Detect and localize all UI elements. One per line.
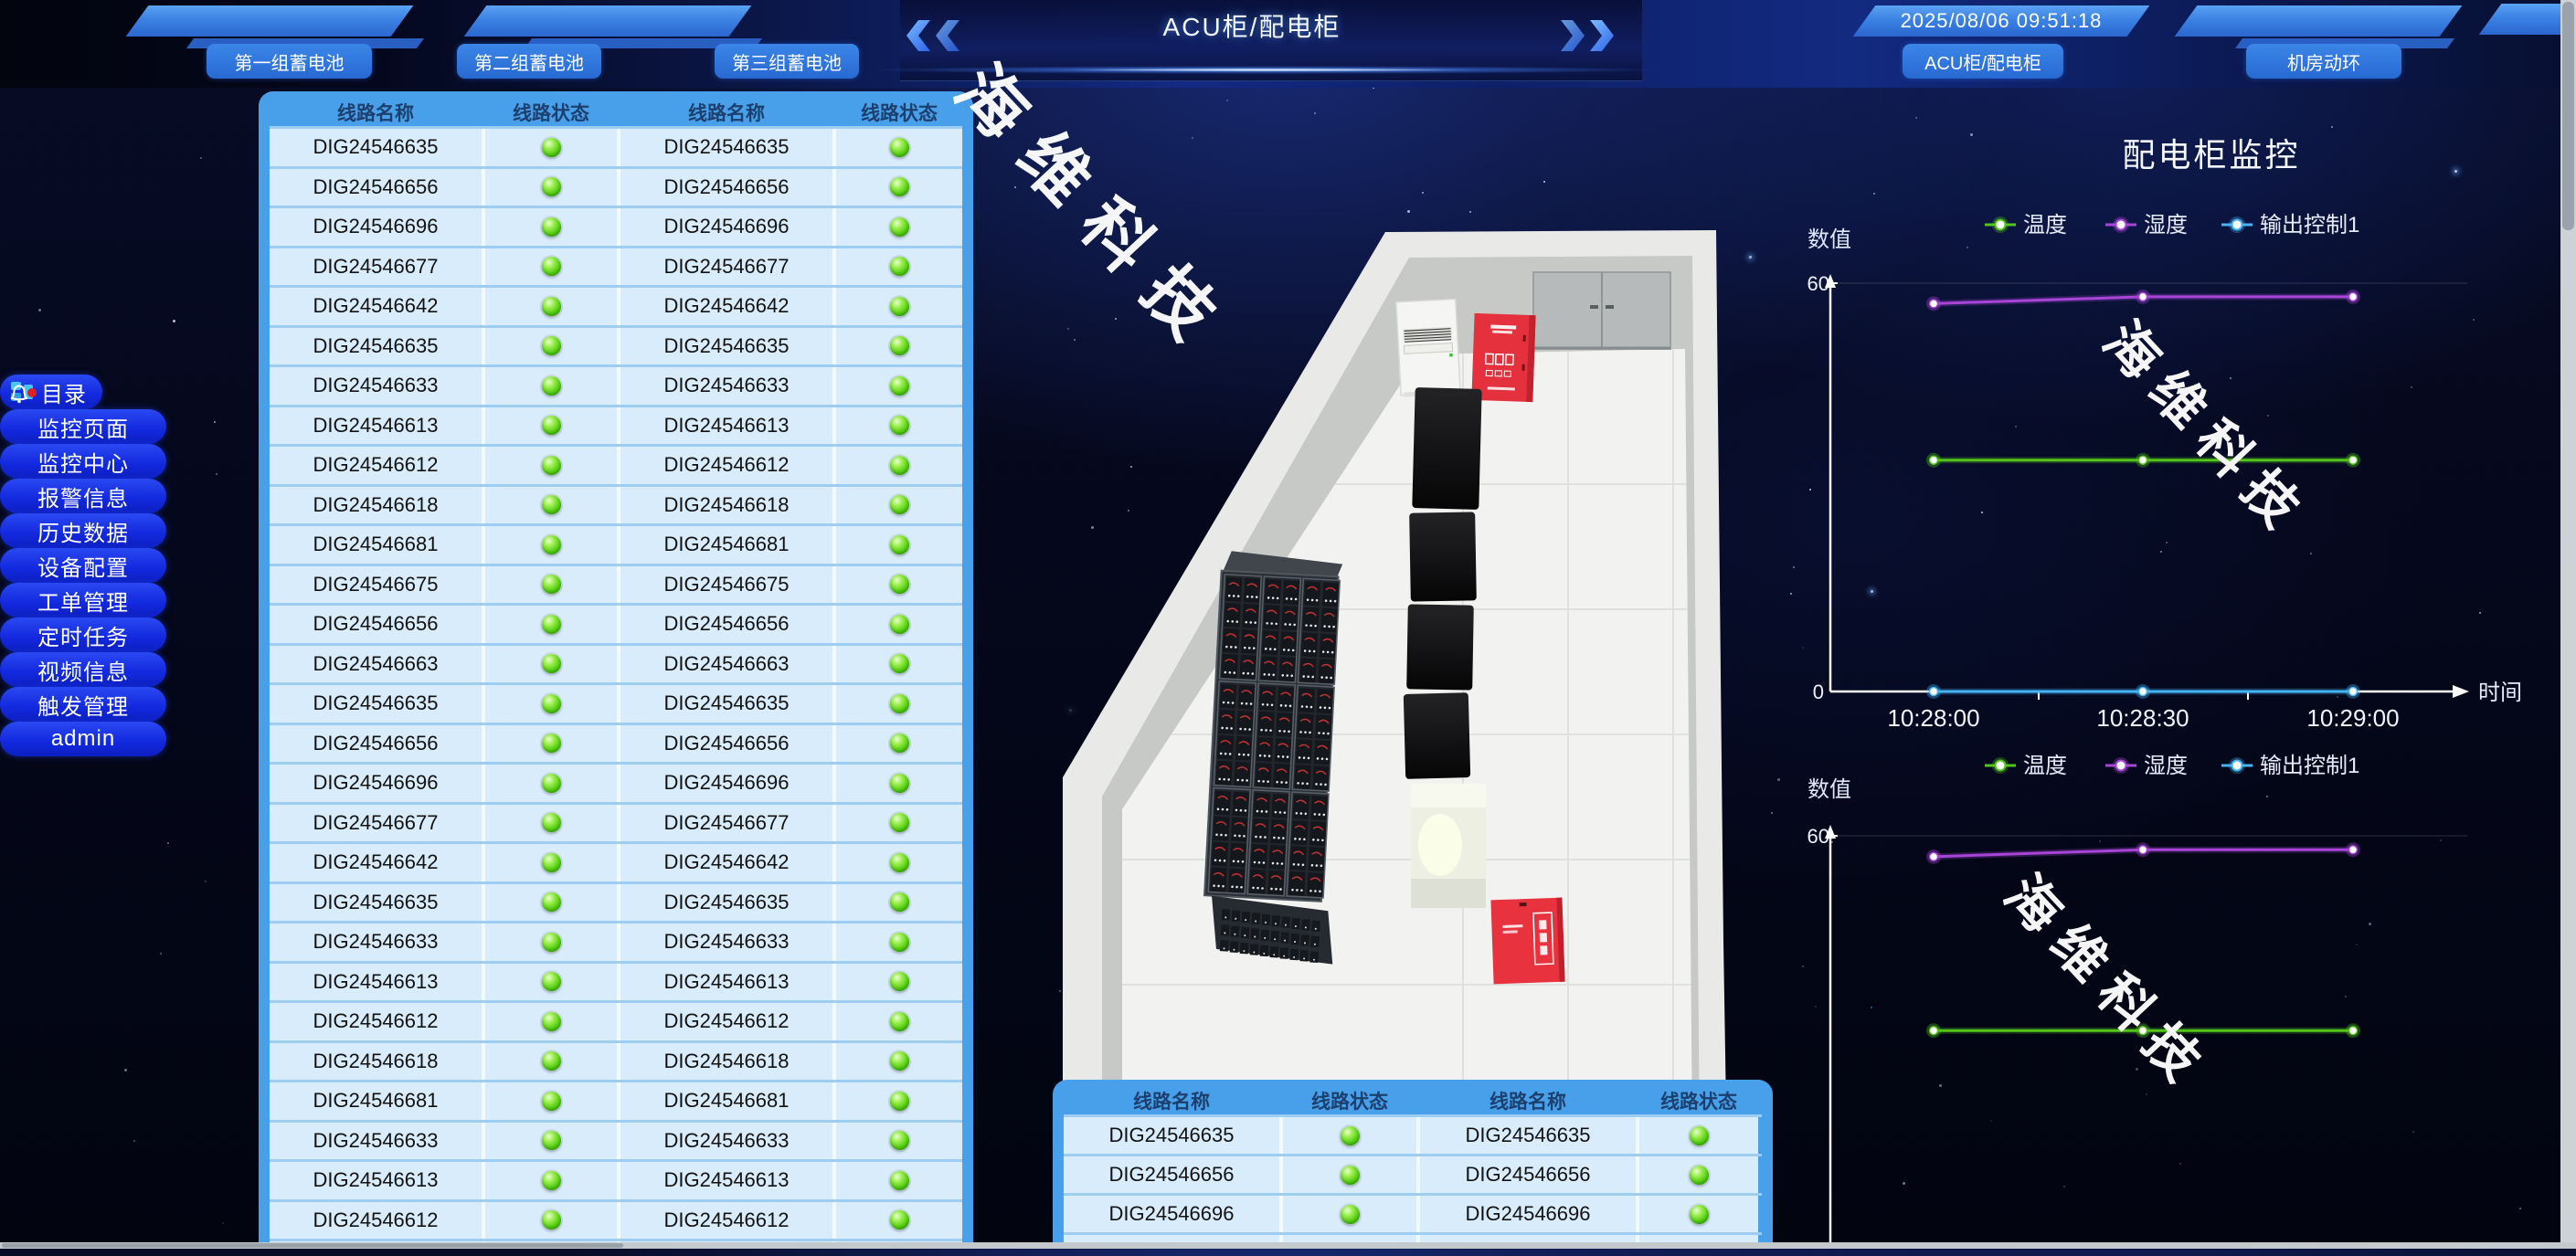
svg-text:10:28:30: 10:28:30 (2096, 704, 2189, 732)
table-row: DIG24546677DIG24546677 (270, 802, 962, 842)
column-header: 线路状态 (1639, 1087, 1758, 1114)
status-led-icon (1341, 1126, 1360, 1145)
circuit-name-cell: DIG24546681 (270, 1082, 485, 1120)
vertical-scrollbar-thumb[interactable] (2562, 2, 2574, 230)
sidebar-item-8[interactable]: 定时任务 (0, 617, 166, 652)
table-row: DIG24546675DIG24546675 (270, 564, 962, 604)
circuit-status-cell (836, 526, 962, 564)
circuit-name-cell: DIG24546612 (270, 1003, 485, 1040)
table-row: DIG24546613DIG24546613 (270, 961, 962, 1001)
status-led-icon (890, 575, 909, 594)
status-led-icon (542, 774, 561, 793)
sidebar-item-11[interactable]: admin (0, 722, 166, 756)
circuit-name-cell: DIG24546696 (270, 208, 485, 246)
svg-text:10:29:00: 10:29:00 (2306, 704, 2399, 732)
svg-text:温度: 温度 (2023, 754, 2067, 778)
column-header: 线路状态 (1283, 1087, 1420, 1114)
circuit-name-cell: DIG24546612 (270, 1202, 485, 1240)
star-dot (1192, 137, 1193, 139)
circuit-status-cell (485, 805, 620, 842)
star-dot (200, 157, 202, 159)
table-row: DIG24546635DIG24546635 (270, 126, 962, 166)
circuit-name-cell: DIG24546656 (270, 725, 485, 763)
column-header: 线路名称 (1420, 1087, 1639, 1114)
sidebar-item-7[interactable]: 工单管理 (0, 583, 166, 617)
column-header: 线路名称 (270, 99, 485, 126)
circuit-name-cell: DIG24546656 (620, 606, 836, 643)
sidebar: 目录监控页面监控中心报警信息历史数据设备配置工单管理定时任务视频信息触发管理ad… (0, 375, 183, 822)
circuit-status-cell (485, 208, 620, 246)
circuit-name-cell: DIG24546696 (620, 208, 836, 246)
circuit-name-cell: DIG24546618 (270, 487, 485, 524)
circuit-name-cell: DIG24546618 (620, 487, 836, 524)
sidebar-item-10[interactable]: 触发管理 (0, 687, 166, 722)
svg-text:数值: 数值 (1807, 777, 1851, 802)
circuit-name-cell: DIG24546663 (270, 646, 485, 683)
sidebar-item-label: 历史数据 (37, 515, 129, 547)
status-led-icon (542, 1012, 561, 1031)
star-dot (167, 842, 169, 844)
svg-text:0: 0 (1813, 681, 1824, 703)
star-dot (1314, 112, 1316, 114)
svg-text:湿度: 湿度 (2144, 754, 2188, 778)
status-led-icon (890, 1051, 909, 1071)
svg-text:湿度: 湿度 (2144, 213, 2188, 237)
table-row: DIG24546635DIG24546635 (270, 325, 962, 365)
battery-group-2-button[interactable]: 第二组蓄电池 (457, 44, 601, 79)
circuit-status-cell (1283, 1156, 1420, 1193)
status-led-icon (1341, 1205, 1360, 1224)
circuit-name-cell: DIG24546675 (620, 566, 836, 604)
status-led-icon (890, 892, 909, 912)
status-led-icon (890, 654, 909, 673)
circuit-name-cell: DIG24546633 (270, 924, 485, 961)
circuit-status-cell (836, 1202, 962, 1240)
status-led-icon (542, 138, 561, 157)
circuit-name-cell: DIG24546656 (270, 606, 485, 643)
circuit-name-cell: DIG24546633 (270, 367, 485, 405)
circuit-status-cell (485, 1123, 620, 1160)
status-led-icon (542, 1171, 561, 1190)
sidebar-item-2[interactable]: 监控页面 (0, 409, 166, 444)
column-header: 线路状态 (485, 99, 620, 126)
circuit-status-cell (836, 606, 962, 643)
star-dot (173, 320, 175, 322)
circuit-status-cell (485, 1043, 620, 1081)
circuit-name-cell: DIG24546656 (1420, 1156, 1639, 1193)
sidebar-item-label: 报警信息 (37, 480, 129, 512)
star-dot (38, 309, 41, 311)
table-row: DIG24546696DIG24546696 (1064, 1193, 1762, 1232)
server-rack (1409, 512, 1477, 601)
circuit-name-cell: DIG24546613 (270, 964, 485, 1001)
circuit-status-cell (836, 208, 962, 246)
status-led-icon (890, 217, 909, 237)
timestamp-plate: 2025/08/06 09:51:18 (1853, 5, 2150, 37)
status-led-icon (542, 217, 561, 237)
ups-box (1411, 784, 1486, 908)
circuit-status-cell (836, 407, 962, 445)
circuit-status-cell (485, 129, 620, 166)
status-led-icon (542, 1092, 561, 1111)
sidebar-item-label: 工单管理 (37, 585, 129, 617)
svg-text:时间: 时间 (2478, 681, 2522, 705)
table-row: DIG24546612DIG24546612 (270, 1000, 962, 1040)
circuit-status-cell (485, 1003, 620, 1040)
header-deco-plate (126, 5, 414, 37)
status-led-icon (890, 297, 909, 316)
status-led-icon (890, 1131, 909, 1150)
table-row: DIG24546618DIG24546618 (270, 1040, 962, 1081)
table-row: DIG24546656DIG24546656 (1064, 1154, 1762, 1193)
circuit-name-cell: DIG24546633 (270, 1123, 485, 1160)
svg-text:配电柜监控: 配电柜监控 (2122, 136, 2300, 174)
status-led-icon (890, 376, 909, 396)
status-led-icon (890, 734, 909, 753)
circuit-name-cell: DIG24546642 (620, 288, 836, 325)
circuit-name-cell: DIG24546677 (620, 248, 836, 286)
machine-room-env-button[interactable]: 机房动环 (2246, 44, 2401, 79)
circuit-name-cell: DIG24546635 (270, 129, 485, 166)
circuit-status-cell (836, 169, 962, 206)
table-row: DIG24546633DIG24546633 (270, 1120, 962, 1160)
table-row: DIG24546612DIG24546612 (270, 1199, 962, 1240)
circuit-name-cell: DIG24546696 (1064, 1196, 1283, 1232)
circuit-status-cell (836, 328, 962, 365)
circuit-status-cell (485, 725, 620, 763)
table-row: DIG24546613DIG24546613 (270, 1159, 962, 1199)
circuit-name-cell: DIG24546613 (270, 1162, 485, 1199)
svg-text:10:28:00: 10:28:00 (1887, 704, 1979, 732)
table-row: DIG24546696DIG24546696 (270, 762, 962, 802)
circuit-name-cell: DIG24546635 (1064, 1117, 1283, 1154)
circuit-status-cell (485, 248, 620, 286)
fire-cabinet (1471, 313, 1535, 402)
circuit-status-cell (485, 487, 620, 524)
circuit-status-cell (485, 447, 620, 484)
status-led-icon (890, 774, 909, 793)
circuit-status-cell (836, 1082, 962, 1120)
circuit-name-cell: DIG24546618 (620, 1043, 836, 1081)
table-row: DIG24546635DIG24546635 (270, 682, 962, 723)
star-dot (1422, 192, 1424, 194)
star-dot (222, 1222, 224, 1224)
circuit-name-cell: DIG24546635 (620, 129, 836, 166)
circuit-status-cell (485, 288, 620, 325)
status-led-icon (542, 892, 561, 912)
scrollbar-corner (2560, 1242, 2576, 1249)
table-row: DIG24546613DIG24546613 (270, 405, 962, 445)
sidebar-item-5[interactable]: 历史数据 (0, 513, 166, 548)
status-led-icon (542, 933, 561, 952)
status-led-icon (542, 615, 561, 634)
server-rack (1412, 387, 1481, 510)
circuit-name-cell: DIG24546681 (620, 526, 836, 564)
header-glow-core (1060, 69, 1480, 71)
circuit-status-cell (836, 1162, 962, 1199)
sidebar-item-9[interactable]: 视频信息 (0, 652, 166, 687)
svg-text:60: 60 (1807, 272, 1829, 295)
circuit-name-cell: DIG24546635 (270, 884, 485, 922)
table-row: DIG24546656DIG24546656 (270, 603, 962, 643)
acu-cabinet-button[interactable]: ACU柜/配电柜 (1903, 44, 2063, 79)
status-led-icon (890, 535, 909, 554)
sidebar-item-label: 监控页面 (37, 411, 129, 443)
circuit-name-cell: DIG24546613 (620, 964, 836, 1001)
table-row: DIG24546618DIG24546618 (270, 484, 962, 524)
table-row: DIG24546635DIG24546635 (270, 881, 962, 922)
table-header-row: 线路名称线路状态线路名称线路状态 (1064, 1086, 1762, 1114)
circuit-name-cell: DIG24546613 (270, 407, 485, 445)
battery-group-1-button[interactable]: 第一组蓄电池 (207, 44, 372, 79)
circuit-status-cell (836, 725, 962, 763)
circuit-status-cell (1283, 1117, 1420, 1154)
circuit-status-cell (485, 844, 620, 881)
star-dot (205, 881, 207, 882)
circuit-name-cell: DIG24546633 (620, 924, 836, 961)
status-led-icon (890, 257, 909, 276)
circuit-name-cell: DIG24546635 (270, 328, 485, 365)
circuit-name-cell: DIG24546613 (620, 1162, 836, 1199)
circuit-name-cell: DIG24546642 (270, 844, 485, 881)
status-led-icon (542, 575, 561, 594)
circuit-name-cell: DIG24546612 (270, 447, 485, 484)
circuit-name-cell: DIG24546635 (620, 685, 836, 723)
table-row: DIG24546612DIG24546612 (270, 444, 962, 484)
header-deco-plate (464, 5, 752, 37)
circuit-name-cell: DIG24546635 (620, 328, 836, 365)
table-header-row: 线路名称线路状态线路名称线路状态 (270, 98, 962, 126)
svg-text:温度: 温度 (2023, 213, 2067, 237)
status-led-icon (890, 813, 909, 832)
status-led-icon (542, 972, 561, 991)
horizontal-scrollbar[interactable] (0, 1242, 2560, 1249)
circuit-name-cell: DIG24546677 (270, 248, 485, 286)
status-led-icon (542, 336, 561, 355)
table-row: DIG24546633DIG24546633 (270, 921, 962, 961)
air-conditioner (1396, 299, 1460, 396)
status-led-icon (890, 1092, 909, 1111)
circuit-name-cell: DIG24546696 (1420, 1196, 1639, 1232)
vertical-scrollbar[interactable] (2560, 0, 2576, 1249)
status-led-icon (890, 1171, 909, 1190)
sidebar-item-label: admin (51, 726, 115, 752)
circuit-status-cell (836, 1043, 962, 1081)
status-led-icon (890, 495, 909, 514)
star-dot (160, 953, 162, 955)
sidebar-item-label: 目录 (41, 376, 87, 408)
circuit-status-cell (1639, 1156, 1758, 1193)
circuit-name-cell: DIG24546633 (620, 1123, 836, 1160)
timestamp: 2025/08/06 09:51:18 (1864, 5, 2138, 37)
table-row: DIG24546681DIG24546681 (270, 523, 962, 564)
circuit-status-cell (485, 328, 620, 365)
circuit-status-cell (485, 526, 620, 564)
circuit-name-cell: DIG24546635 (1420, 1117, 1639, 1154)
circuit-status-cell (836, 248, 962, 286)
star-dot (214, 421, 216, 423)
circuit-status-cell (836, 1123, 962, 1160)
circuit-status-cell (836, 1003, 962, 1040)
circuit-status-cell (836, 646, 962, 683)
status-led-icon (542, 376, 561, 396)
circuit-status-cell (485, 765, 620, 802)
circuit-name-cell: DIG24546675 (270, 566, 485, 604)
column-header: 线路名称 (1064, 1087, 1283, 1114)
bell-icon (9, 381, 40, 405)
sidebar-item-6[interactable]: 设备配置 (0, 548, 166, 583)
circuit-status-cell (836, 566, 962, 604)
table-row: DIG24546635DIG24546635 (1064, 1114, 1762, 1154)
status-led-icon (890, 336, 909, 355)
circuit-name-cell: DIG24546696 (620, 765, 836, 802)
circuit-name-cell: DIG24546612 (620, 1003, 836, 1040)
circuit-name-cell: DIG24546656 (1064, 1156, 1283, 1193)
circuit-status-cell (485, 1082, 620, 1120)
circuit-name-cell: DIG24546612 (620, 1202, 836, 1240)
circuit-status-cell (485, 884, 620, 922)
sidebar-item-label: 触发管理 (37, 689, 129, 721)
table-row: DIG24546642DIG24546642 (270, 285, 962, 325)
circuit-status-cell (836, 129, 962, 166)
star-dot (133, 1140, 135, 1142)
status-led-icon (542, 1051, 561, 1071)
status-led-icon (542, 853, 561, 872)
star-dot (1543, 181, 1545, 183)
page-title: ACU柜/配电柜 (1069, 11, 1435, 44)
circuit-name-cell: DIG24546635 (270, 685, 485, 723)
door (1533, 272, 1670, 349)
circuit-name-cell: DIG24546681 (270, 526, 485, 564)
table-row: DIG24546696DIG24546696 (270, 206, 962, 246)
circuit-status-cell (1639, 1117, 1758, 1154)
server-rack (1406, 604, 1474, 690)
circuit-status-cell (836, 844, 962, 881)
circuit-status-cell (485, 367, 620, 405)
column-header: 线路名称 (620, 99, 836, 126)
star-dot (216, 473, 217, 475)
circuit-name-cell: DIG24546612 (620, 447, 836, 484)
circuit-status-cell (485, 566, 620, 604)
status-led-icon (890, 853, 909, 872)
status-led-icon (890, 1012, 909, 1031)
status-led-icon (1690, 1205, 1709, 1224)
circuit-status-cell (836, 487, 962, 524)
status-led-icon (890, 177, 909, 196)
sidebar-item-label: 设备配置 (37, 550, 129, 582)
circuit-status-table: 线路名称线路状态线路名称线路状态DIG24546635DIG24546635DI… (259, 91, 973, 1249)
status-led-icon (542, 813, 561, 832)
sidebar-item-label: 监控中心 (37, 446, 129, 478)
circuit-status-cell (836, 765, 962, 802)
circuit-status-cell (836, 288, 962, 325)
circuit-status-cell (1283, 1196, 1420, 1232)
circuit-status-cell (836, 924, 962, 961)
status-led-icon (542, 257, 561, 276)
table-row: DIG24546663DIG24546663 (270, 643, 962, 683)
fire-cabinet-2 (1490, 898, 1564, 985)
circuit-name-cell: DIG24546677 (620, 805, 836, 842)
status-led-icon (542, 654, 561, 673)
circuit-name-cell: DIG24546656 (270, 169, 485, 206)
status-led-icon (890, 456, 909, 475)
sidebar-item-label: 视频信息 (37, 654, 129, 686)
circuit-name-cell: DIG24546642 (270, 288, 485, 325)
circuit-status-cell (836, 685, 962, 723)
svg-text:数值: 数值 (1807, 227, 1851, 252)
circuit-name-cell: DIG24546633 (620, 367, 836, 405)
circuit-status-table-bottom: 线路名称线路状态线路名称线路状态DIG24546635DIG24546635DI… (1053, 1080, 1773, 1249)
status-led-icon (890, 615, 909, 634)
status-led-icon (890, 416, 909, 435)
circuit-name-cell: DIG24546656 (620, 725, 836, 763)
table-row: DIG24546656DIG24546656 (270, 723, 962, 763)
sidebar-item-4[interactable]: 报警信息 (0, 479, 166, 513)
battery-group-3-button[interactable]: 第三组蓄电池 (715, 44, 859, 79)
status-led-icon (890, 933, 909, 952)
circuit-status-cell (1639, 1196, 1758, 1232)
circuit-name-cell: DIG24546642 (620, 844, 836, 881)
status-led-icon (890, 972, 909, 991)
table-row: DIG24546656DIG24546656 (270, 166, 962, 206)
circuit-status-cell (836, 447, 962, 484)
status-led-icon (542, 535, 561, 554)
circuit-status-cell (836, 367, 962, 405)
svg-text:输出控制1: 输出控制1 (2260, 213, 2359, 237)
status-led-icon (542, 456, 561, 475)
status-led-icon (542, 694, 561, 713)
table-row: DIG24546681DIG24546681 (270, 1080, 962, 1120)
horizontal-scrollbar-thumb[interactable] (2, 1243, 623, 1248)
circuit-status-cell (485, 169, 620, 206)
circuit-name-cell: DIG24546663 (620, 646, 836, 683)
status-led-icon (542, 495, 561, 514)
status-led-icon (890, 138, 909, 157)
circuit-name-cell: DIG24546677 (270, 805, 485, 842)
circuit-status-cell (485, 964, 620, 1001)
circuit-status-cell (836, 884, 962, 922)
top-header: ACU柜/配电柜 2025/08/06 09:51:18 (0, 0, 2576, 88)
status-led-icon (542, 1210, 561, 1230)
circuit-status-cell (485, 407, 620, 445)
table-row: DIG24546677DIG24546677 (270, 246, 962, 286)
circuit-status-cell (836, 964, 962, 1001)
status-led-icon (1690, 1126, 1709, 1145)
circuit-name-cell: DIG24546618 (270, 1043, 485, 1081)
star-dot (1226, 100, 1228, 101)
circuit-status-cell (485, 1162, 620, 1199)
circuit-name-cell: DIG24546656 (620, 169, 836, 206)
status-led-icon (542, 1131, 561, 1150)
circuit-status-cell (836, 805, 962, 842)
status-led-icon (1341, 1166, 1360, 1185)
circuit-status-cell (485, 1202, 620, 1240)
status-led-icon (542, 177, 561, 196)
circuit-status-cell (485, 646, 620, 683)
sidebar-item-3[interactable]: 监控中心 (0, 444, 166, 479)
circuit-name-cell: DIG24546681 (620, 1082, 836, 1120)
status-led-icon (542, 734, 561, 753)
svg-text:输出控制1: 输出控制1 (2260, 754, 2359, 778)
table-row: DIG24546642DIG24546642 (270, 841, 962, 881)
server-rack (1404, 692, 1470, 779)
circuit-status-cell (485, 924, 620, 961)
circuit-name-cell: DIG24546635 (620, 884, 836, 922)
status-led-icon (890, 694, 909, 713)
circuit-status-cell (485, 685, 620, 723)
status-led-icon (542, 297, 561, 316)
star-dot (124, 1069, 127, 1071)
